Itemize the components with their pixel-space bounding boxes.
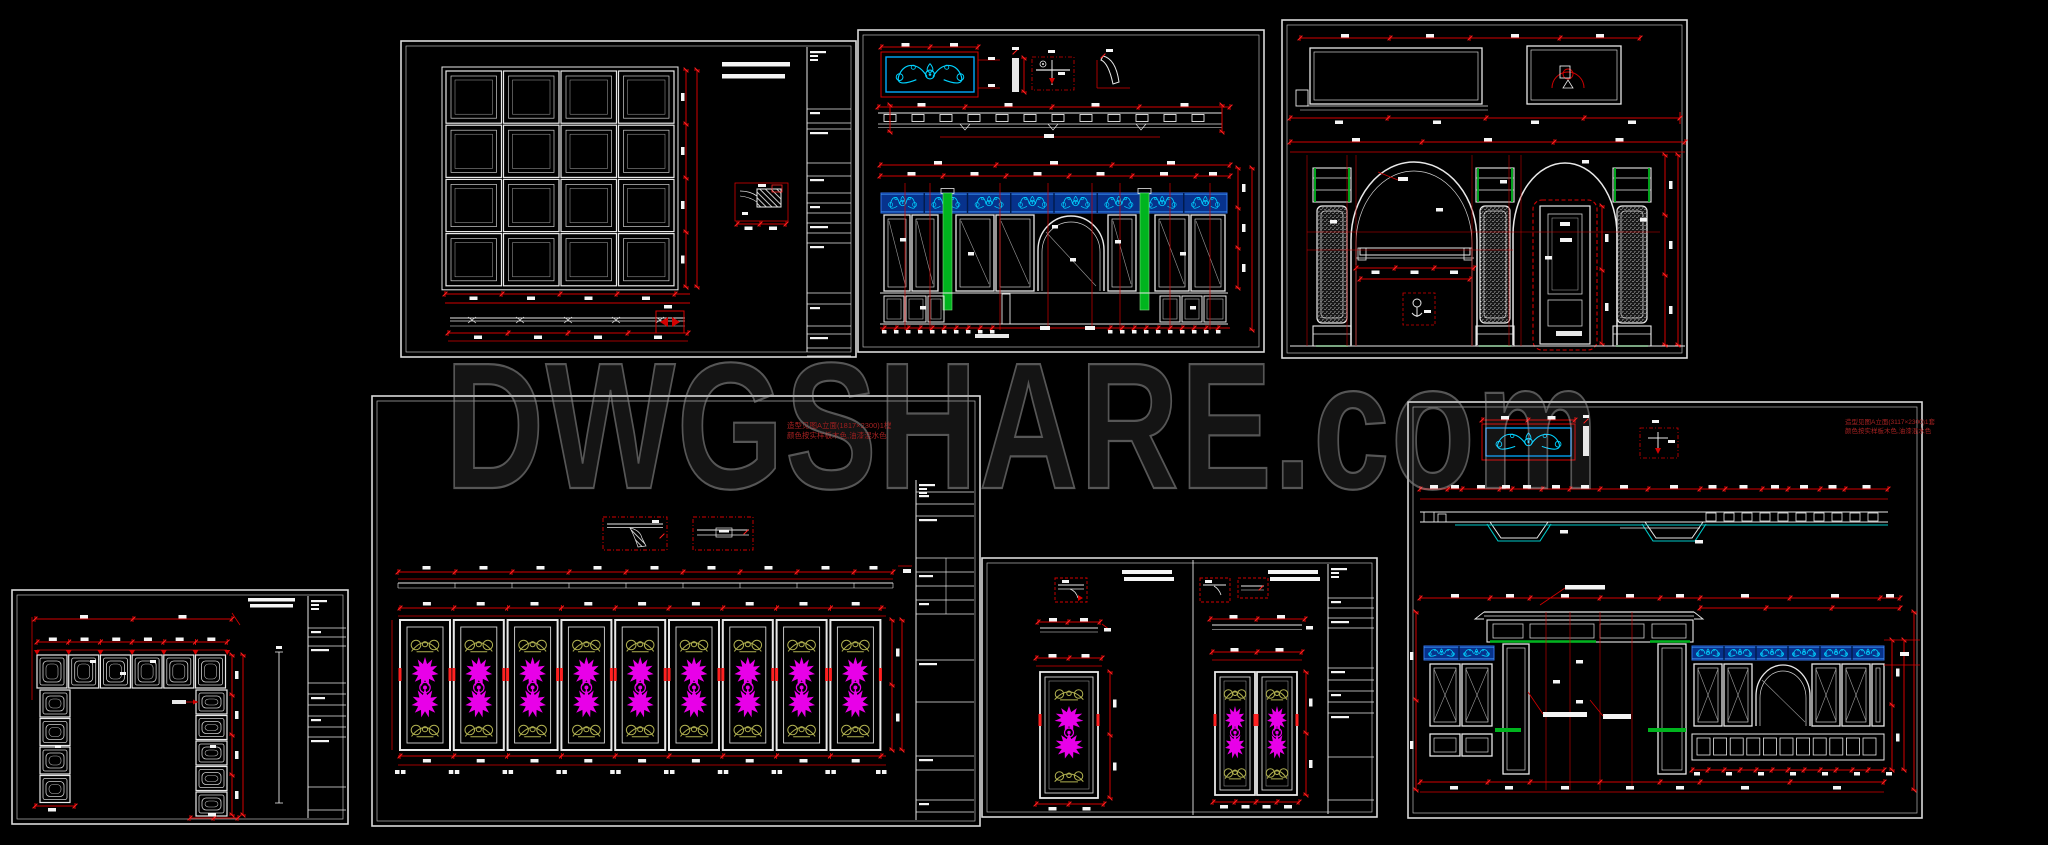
annotation-right-sheet: 造型见图A立面(3117×2300)1套 颜色按实样板木色,油漆混水色: [1845, 418, 1935, 436]
sheet-d-nine-panel-carved-wall-elevation: [372, 396, 980, 826]
annotation-line: 造型见图A立面(1817×2300)1樘: [787, 421, 891, 431]
sheet-b-carved-cabinet-elevation: [858, 30, 1264, 352]
sheet-g-carved-cabinet-elevation-b: [1408, 402, 1922, 818]
sheet-c-double-arch-pilaster-elevation: [1282, 20, 1687, 358]
cad-drawing-layer: [0, 0, 2048, 845]
annotation-line: 颜色按实样板木色,油漆混水色: [787, 431, 891, 441]
sheet-f-carved-door-panels: [982, 558, 1377, 817]
annotation-line: 颜色按实样板木色,油漆混水色: [1845, 427, 1935, 436]
cad-preview-canvas: { "watermark": { "text": "DWGSHARE.com",…: [0, 0, 2048, 845]
sheet-a-coffered-grid-panel-elevation: [401, 41, 856, 357]
annotation-line: 造型见图A立面(3117×2300)1套: [1845, 418, 1935, 427]
annotation-mid-sheet: 造型见图A立面(1817×2300)1樘 颜色按实样板木色,油漆混水色: [787, 421, 891, 441]
sheet-e-coffered-door-surround: [12, 590, 348, 824]
